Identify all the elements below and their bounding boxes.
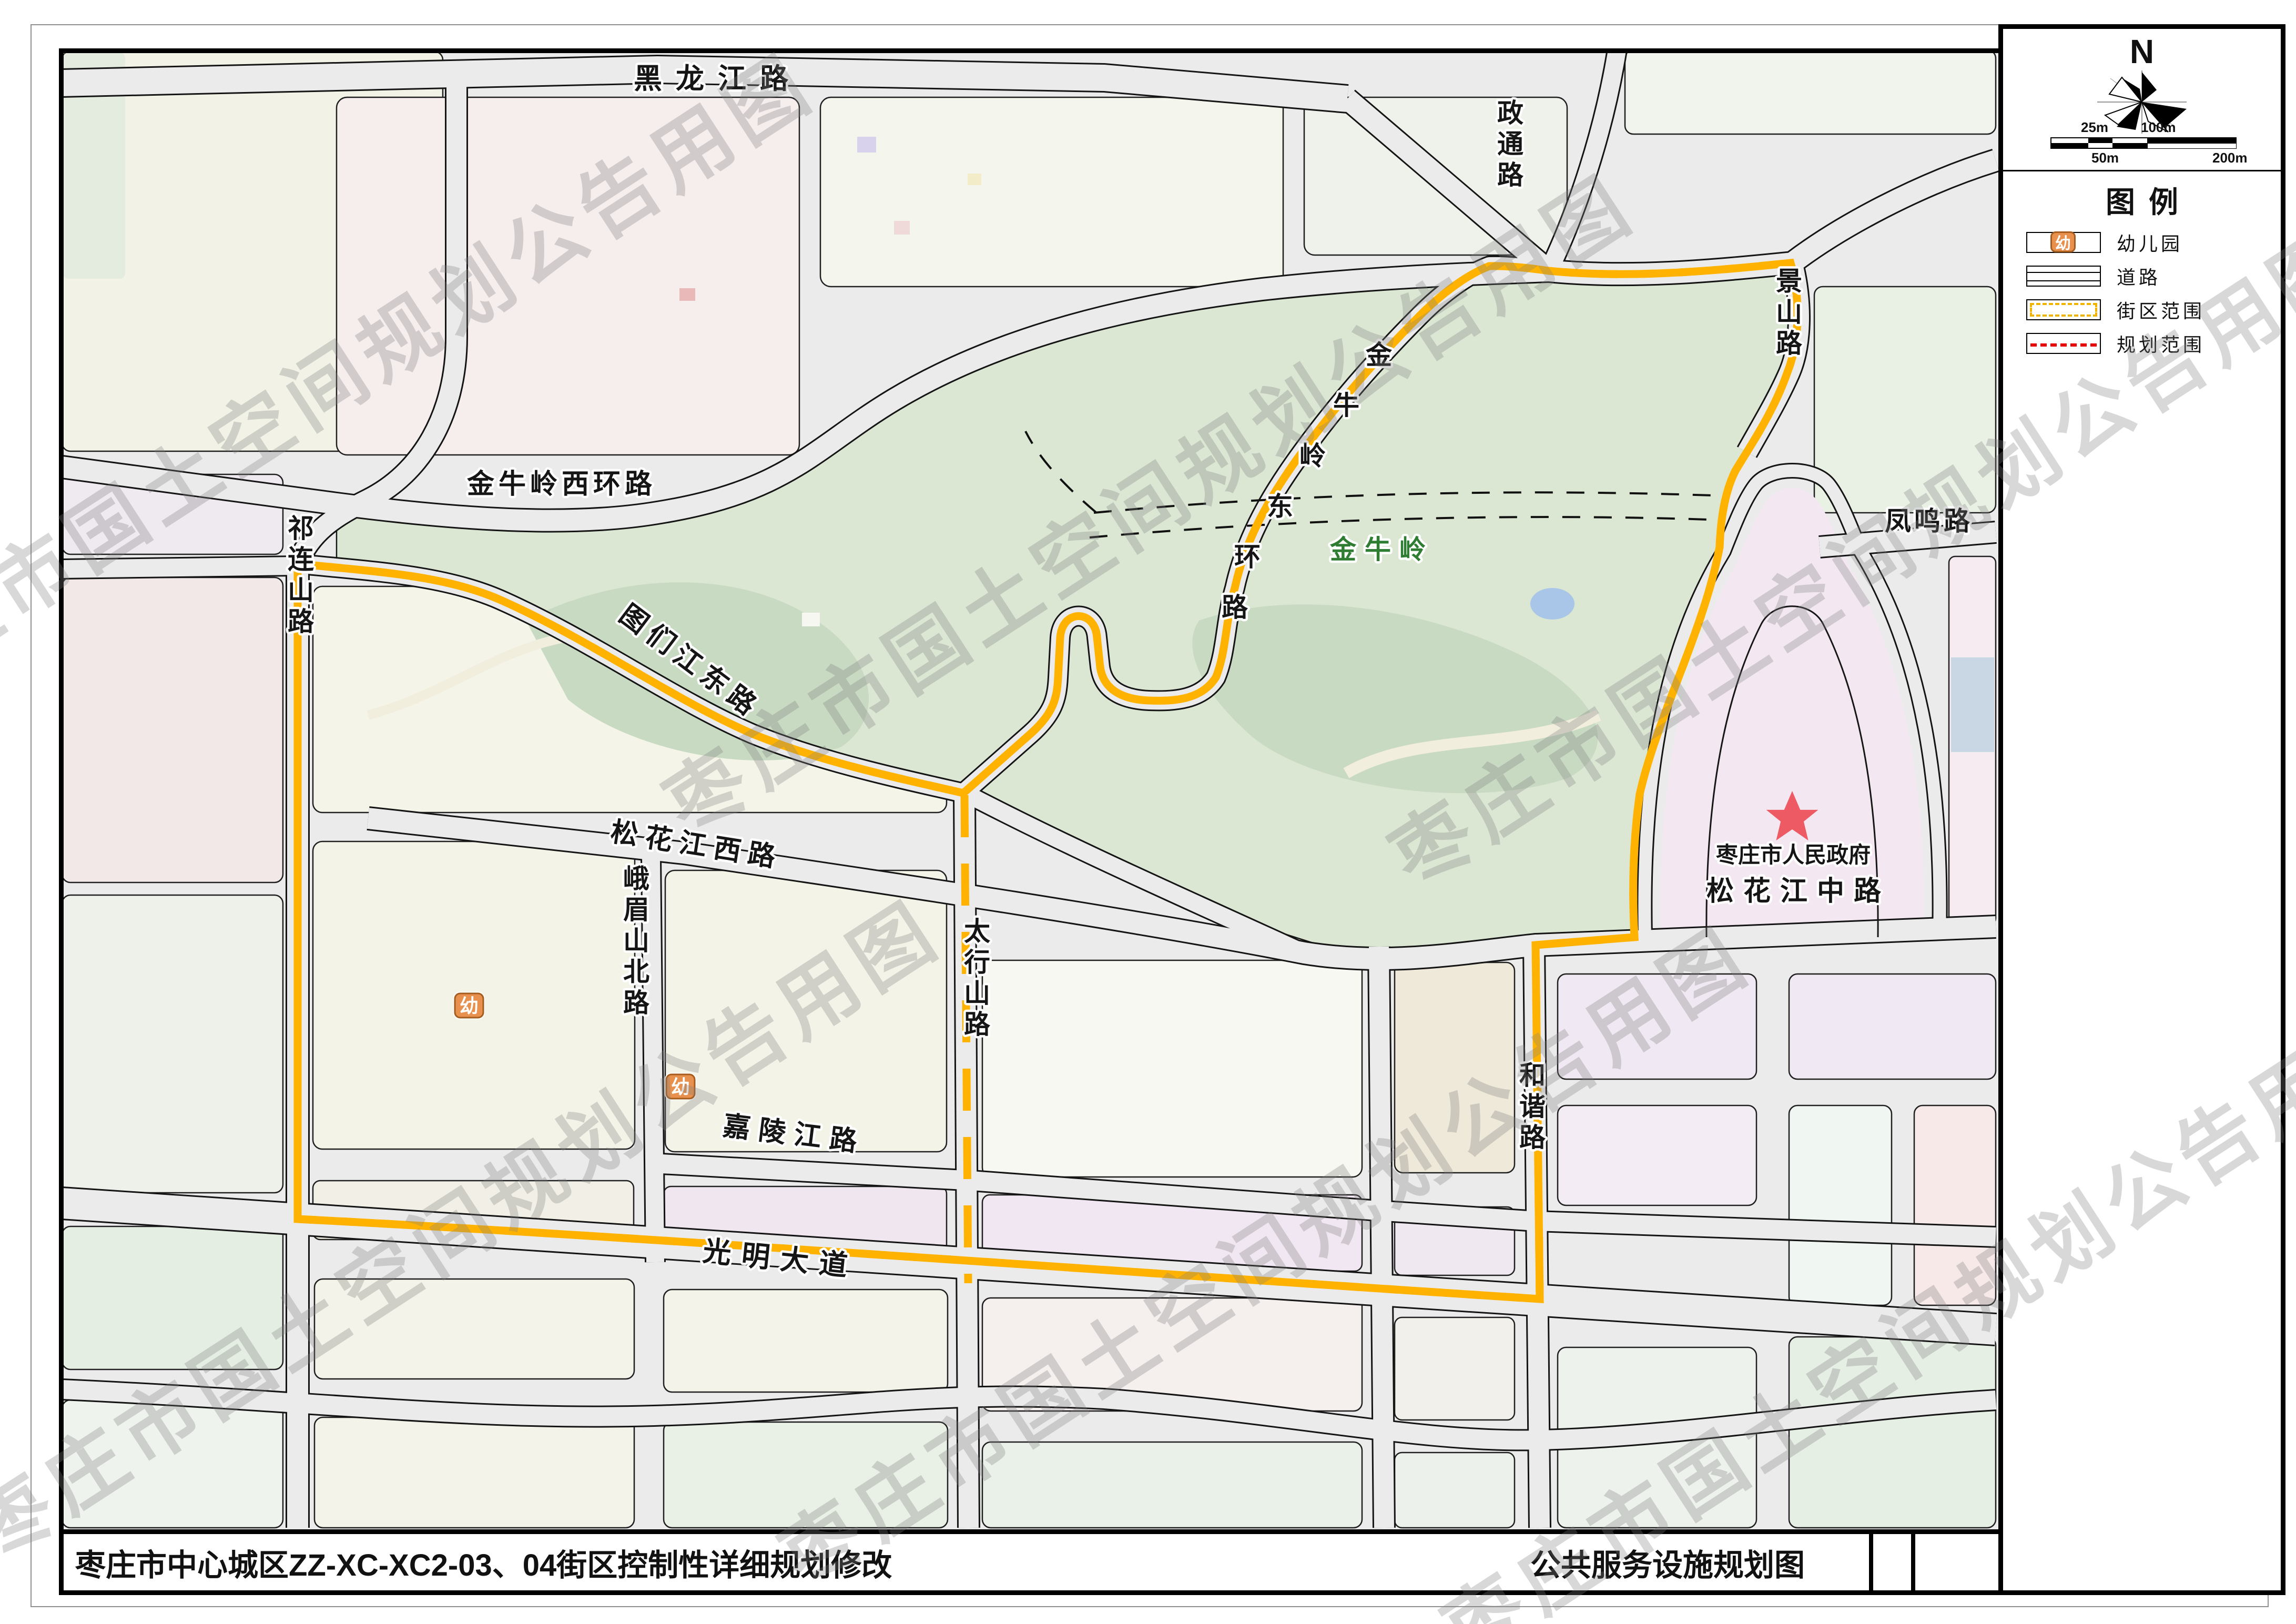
road-swatch [2026, 266, 2101, 287]
legend-item-road: 道路 [2026, 262, 2281, 290]
block-extent-swatch [2026, 299, 2101, 320]
road-label-0: 黑龙江路 [634, 63, 802, 95]
map-canvas: 幼 幼 黑龙江路政通路景山路凤鸣路金牛岭西环路祁连山路图们江东路金牛岭东环路金牛… [64, 53, 1998, 1529]
legend-item-kindergarten: 幼 幼儿园 [2026, 229, 2281, 256]
road-label-11: 环 [1234, 542, 1261, 572]
scale-200m-label: 200m [2212, 150, 2248, 166]
compass-section: N 25m 100m [2003, 29, 2281, 171]
sheet-title: 枣庄市中心城区ZZ-XC-XC2-03、04街区控制性详细规划修改 [75, 1540, 892, 1585]
road-label-9: 岭 [1299, 441, 1326, 471]
kindergarten-icon: 幼 [665, 1073, 696, 1100]
road-label-4: 金牛岭西环路 [466, 469, 656, 500]
legend-items: 幼 幼儿园 道路 街区范围 规划范围 [2003, 225, 2281, 357]
title-bar: 枣庄市中心城区ZZ-XC-XC2-03、04街区控制性详细规划修改 公共服务设施… [59, 1529, 2003, 1595]
legend-item-block-extent: 街区范围 [2026, 296, 2281, 323]
road-label-15: 峨眉山北路 [623, 864, 650, 1018]
road-label-7: 金 [1366, 340, 1393, 370]
road-label-20: 松花江中路 [1706, 876, 1891, 907]
legend-label: 道路 [2117, 262, 2161, 290]
title-bar-divider [1869, 1534, 1873, 1590]
title-bar-divider [1911, 1534, 1915, 1590]
legend-item-planning-extent: 规划范围 [2026, 330, 2281, 357]
road-label-2: 景山路 [1776, 267, 1803, 358]
kindergarten-icon: 幼 [453, 992, 485, 1019]
road-label-3: 凤鸣路 [1885, 506, 1973, 536]
park-building [679, 288, 695, 301]
kindergarten-badge-icon: 幼 [2050, 231, 2076, 252]
taihang-block-extent-line [964, 795, 968, 1283]
svg-text:幼: 幼 [671, 1076, 690, 1098]
legend-panel: N 25m 100m [1998, 24, 2285, 1595]
planning-extent-swatch [2026, 333, 2101, 354]
scale-25m-label: 25m [2081, 119, 2108, 136]
road-label-13: 金牛岭 [1330, 535, 1434, 564]
road-label-1: 政通路 [1497, 98, 1524, 190]
plan-sheet: 幼 幼 黑龙江路政通路景山路凤鸣路金牛岭西环路祁连山路图们江东路金牛岭东环路金牛… [0, 0, 2296, 1624]
legend-heading: 图例 [2003, 179, 2281, 221]
road-label-8: 牛 [1333, 391, 1359, 420]
park-building [802, 613, 820, 626]
scale-100m-label: 100m [2141, 119, 2176, 136]
park-pond [1530, 588, 1574, 620]
scale-bar [2050, 137, 2237, 149]
kindergarten-swatch: 幼 [2026, 232, 2101, 253]
legend-label: 规划范围 [2117, 330, 2205, 357]
drawing-name: 公共服务设施规划图 [1473, 1540, 1862, 1585]
legend-label: 幼儿园 [2117, 229, 2183, 256]
road-label-21: 枣庄市人民政府 [1715, 843, 1871, 867]
road-label-12: 路 [1222, 593, 1248, 622]
legend-label: 街区范围 [2117, 296, 2205, 323]
map-area: 幼 幼 黑龙江路政通路景山路凤鸣路金牛岭西环路祁连山路图们江东路金牛岭东环路金牛… [59, 48, 2003, 1534]
svg-text:幼: 幼 [460, 995, 479, 1017]
road-label-19: 和谐路 [1519, 1061, 1546, 1152]
road-label-10: 东 [1267, 492, 1293, 521]
scale-50m-label: 50m [2091, 150, 2119, 166]
north-label: N [2003, 32, 2281, 71]
